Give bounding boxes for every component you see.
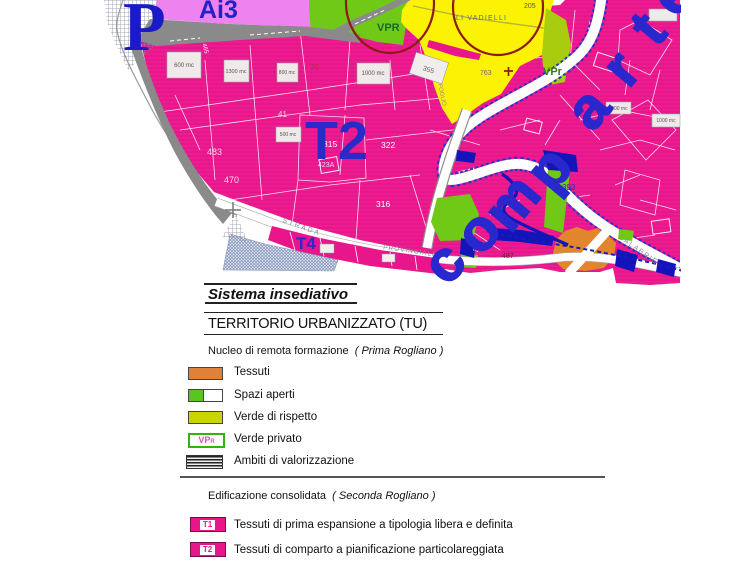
svg-text:VPR: VPR <box>377 22 400 34</box>
svg-text:205: 205 <box>524 3 536 10</box>
svg-text:316: 316 <box>376 199 390 209</box>
svg-text:P: P <box>123 0 166 66</box>
svg-text:500 mc: 500 mc <box>280 132 297 138</box>
svg-text:Ai3: Ai3 <box>199 0 238 24</box>
svg-text:483: 483 <box>207 147 222 157</box>
svg-text:763: 763 <box>480 70 492 77</box>
svg-text:1000 mc: 1000 mc <box>656 118 676 124</box>
svg-text:T4: T4 <box>296 234 316 253</box>
svg-text:1000 mc: 1000 mc <box>361 71 384 77</box>
svg-text:470: 470 <box>224 175 239 185</box>
svg-text:T2: T2 <box>305 111 368 171</box>
svg-text:322: 322 <box>381 140 395 150</box>
svg-text:487: 487 <box>502 253 514 260</box>
svg-text:1300 mc: 1300 mc <box>225 69 246 75</box>
svg-text:800 mc: 800 mc <box>279 70 296 76</box>
svg-text:VPr: VPr <box>543 66 563 78</box>
svg-text:39: 39 <box>310 63 319 72</box>
svg-text:LI VADIELLI: LI VADIELLI <box>456 15 507 22</box>
svg-text:41: 41 <box>278 110 287 119</box>
svg-text:600 mc: 600 mc <box>174 63 194 69</box>
